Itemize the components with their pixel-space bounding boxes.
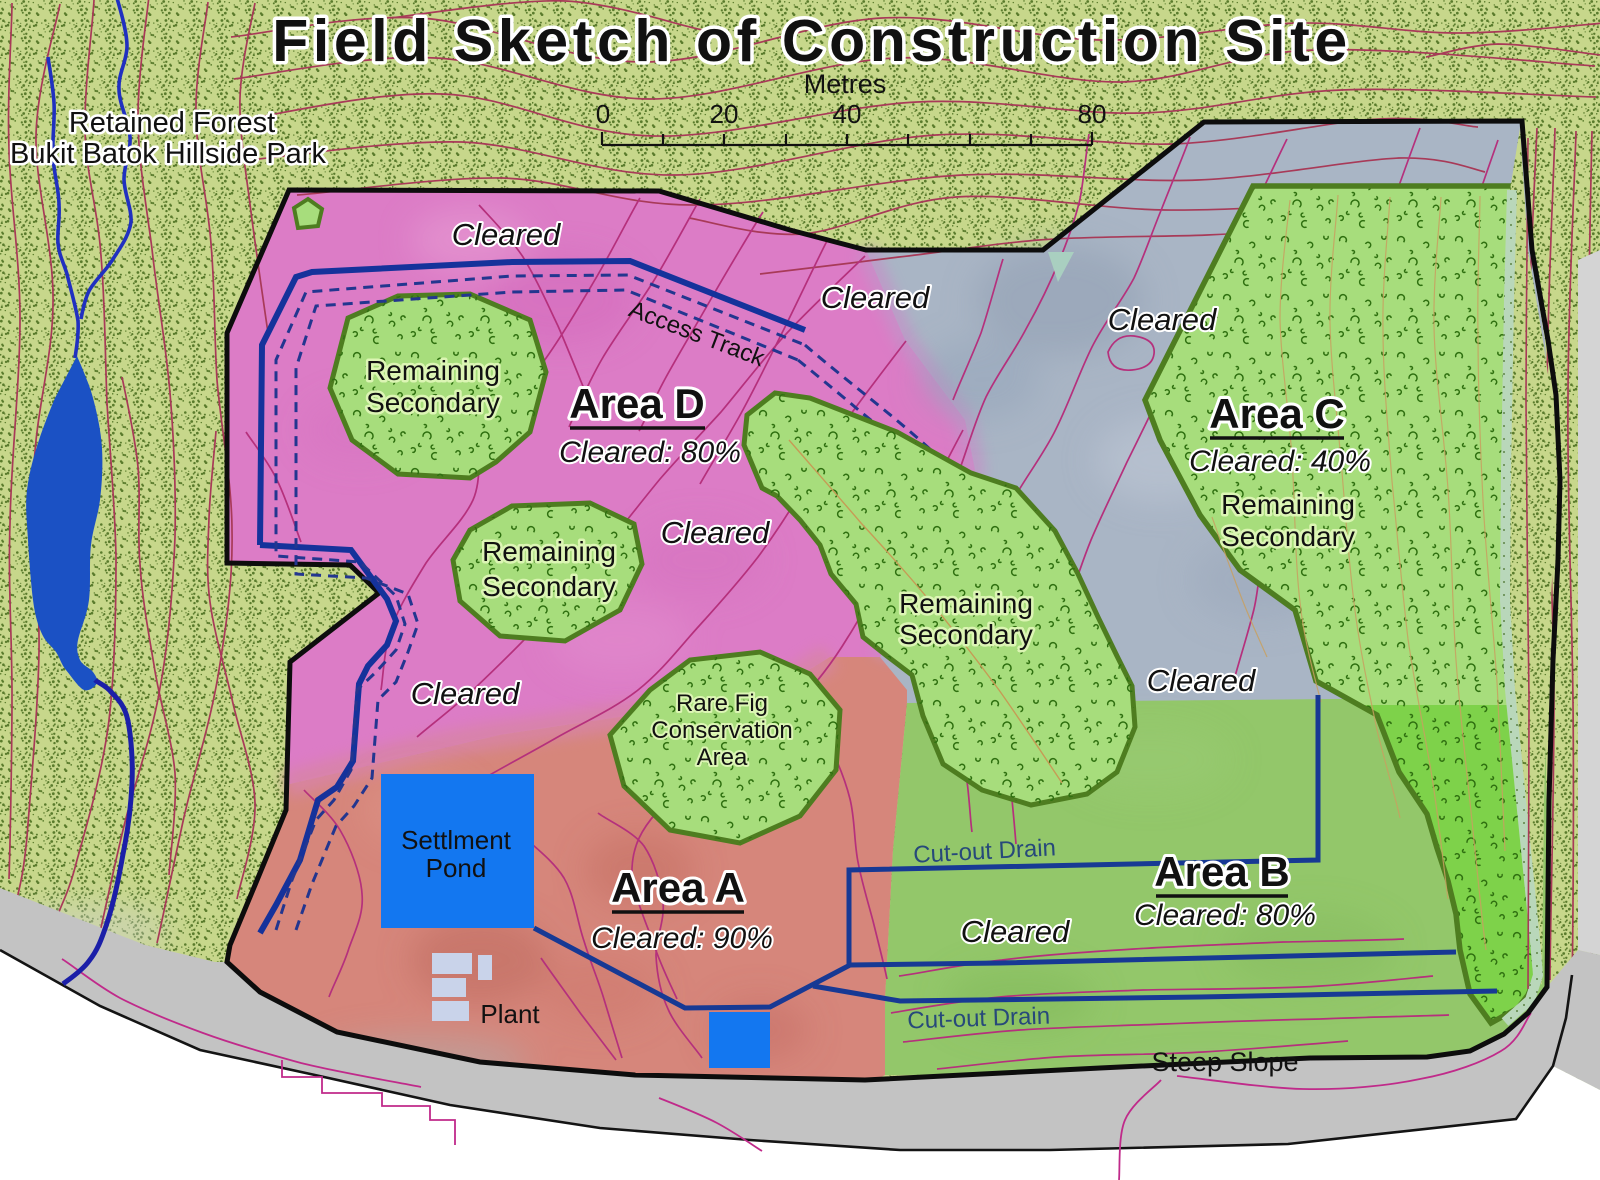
svg-text:Area A: Area A	[611, 864, 745, 911]
svg-text:Conservation: Conservation	[651, 717, 792, 744]
svg-text:Remaining: Remaining	[366, 355, 500, 386]
svg-text:Cleared: Cleared	[411, 676, 521, 711]
svg-text:Rare Fig: Rare Fig	[676, 690, 768, 717]
svg-text:Steep Slope: Steep Slope	[1151, 1047, 1298, 1077]
svg-text:Cleared: Cleared	[1108, 302, 1218, 337]
svg-text:Retained Forest: Retained Forest	[69, 107, 275, 139]
svg-text:Cleared: Cleared	[961, 914, 1071, 949]
svg-text:Secondary: Secondary	[482, 571, 616, 602]
svg-text:0: 0	[596, 99, 610, 129]
svg-text:Pond: Pond	[426, 853, 487, 883]
svg-text:Area: Area	[697, 744, 748, 771]
svg-text:Cleared: 80%: Cleared: 80%	[559, 436, 741, 469]
svg-text:Secondary: Secondary	[366, 387, 500, 418]
svg-text:Remaining: Remaining	[482, 536, 616, 567]
svg-text:Secondary: Secondary	[1221, 521, 1355, 552]
svg-text:20: 20	[710, 99, 739, 129]
svg-text:Bukit Batok Hillside Park: Bukit Batok Hillside Park	[10, 138, 326, 170]
svg-text:Area D: Area D	[569, 380, 704, 427]
svg-text:80: 80	[1078, 99, 1107, 129]
svg-text:Field Sketch of Construction S: Field Sketch of Construction Site	[272, 8, 1352, 74]
svg-text:Cleared: 90%: Cleared: 90%	[591, 922, 773, 955]
svg-text:Cleared: Cleared	[661, 515, 771, 550]
svg-text:Cleared: 80%: Cleared: 80%	[1134, 899, 1316, 932]
svg-text:Cut-out Drain: Cut-out Drain	[907, 1003, 1051, 1035]
svg-text:Cleared: Cleared	[452, 217, 562, 252]
svg-text:Area B: Area B	[1154, 848, 1289, 895]
svg-text:Remaining: Remaining	[1221, 489, 1355, 520]
svg-text:Cleared: 40%: Cleared: 40%	[1189, 445, 1371, 478]
svg-text:Area C: Area C	[1209, 390, 1344, 437]
svg-text:Cleared: Cleared	[1147, 663, 1257, 698]
svg-text:Remaining: Remaining	[899, 588, 1033, 619]
svg-text:Secondary: Secondary	[899, 619, 1033, 650]
svg-text:Metres: Metres	[804, 69, 887, 99]
svg-text:Plant: Plant	[480, 999, 540, 1029]
svg-text:Settlment: Settlment	[401, 825, 512, 855]
svg-text:Cleared: Cleared	[821, 280, 931, 315]
svg-text:40: 40	[833, 99, 862, 129]
